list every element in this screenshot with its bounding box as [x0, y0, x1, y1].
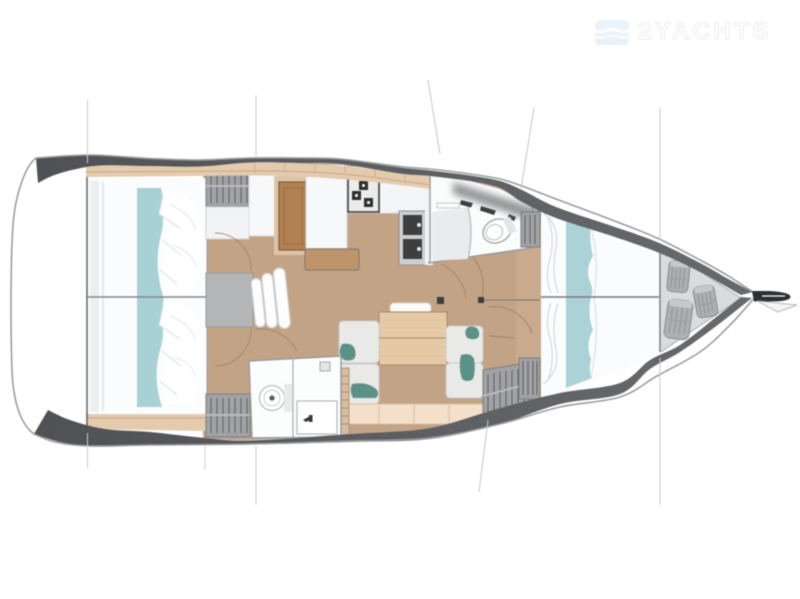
svg-text:2YACHTS: 2YACHTS	[638, 18, 772, 45]
